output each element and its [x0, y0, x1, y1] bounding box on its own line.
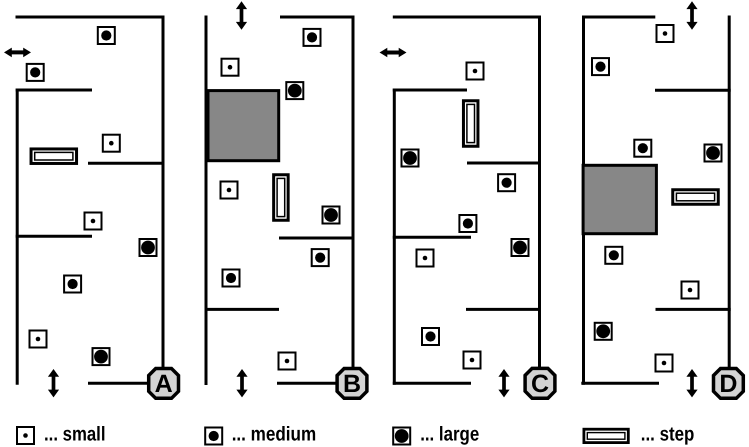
- svg-text:... large: ... large: [420, 423, 479, 445]
- svg-text:C: C: [531, 370, 549, 398]
- svg-text:... medium: ... medium: [232, 423, 317, 445]
- svg-text:... small: ... small: [44, 423, 106, 445]
- svg-text:... step: ... step: [641, 423, 695, 445]
- svg-text:D: D: [719, 370, 737, 398]
- svg-text:A: A: [155, 370, 173, 398]
- svg-text:B: B: [343, 370, 361, 398]
